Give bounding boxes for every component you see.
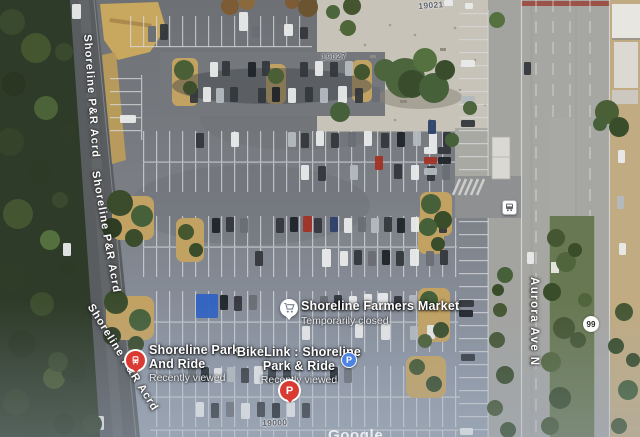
google-watermark: Google bbox=[328, 427, 383, 437]
parking-icon[interactable]: P bbox=[341, 352, 357, 368]
poi-label-shoreline-park-and-ride[interactable]: Shoreline Park And Ride Recently viewed bbox=[149, 344, 239, 384]
address-number: 19021 bbox=[418, 0, 444, 11]
address-number: 19000 bbox=[262, 417, 287, 428]
poi-status: Recently viewed bbox=[149, 372, 239, 384]
poi-title: And Ride bbox=[149, 358, 239, 372]
street-label-aurora-ave-n: Aurora Ave N bbox=[528, 277, 540, 366]
poi-pin-shoreline-farmers-market[interactable] bbox=[280, 299, 298, 317]
transit-icon bbox=[130, 355, 141, 366]
poi-pin-bikelink-parking[interactable]: P bbox=[280, 381, 299, 400]
satellite-map-canvas[interactable]: Shoreline P&R Acrd Shoreline P&R Acrd Sh… bbox=[0, 0, 640, 437]
bus-glyph bbox=[505, 203, 514, 212]
bus-stop-icon[interactable] bbox=[502, 200, 517, 215]
shopping-cart-icon bbox=[283, 302, 295, 314]
poi-status: Temporarily closed bbox=[301, 315, 459, 327]
poi-status: Recently viewed bbox=[234, 374, 364, 386]
route-99-shield: 99 bbox=[583, 316, 599, 332]
poi-title: Shoreline Park bbox=[149, 344, 239, 358]
poi-pin-shoreline-park-and-ride[interactable] bbox=[126, 351, 145, 370]
address-number: 19027 bbox=[321, 51, 347, 62]
bus-shelter bbox=[492, 137, 510, 179]
parking-letter: P bbox=[286, 385, 293, 397]
poi-title: Shoreline Farmers Market bbox=[301, 300, 459, 314]
poi-label-shoreline-farmers-market[interactable]: Shoreline Farmers Market Temporarily clo… bbox=[301, 300, 459, 327]
parking-letter: P bbox=[346, 355, 352, 365]
